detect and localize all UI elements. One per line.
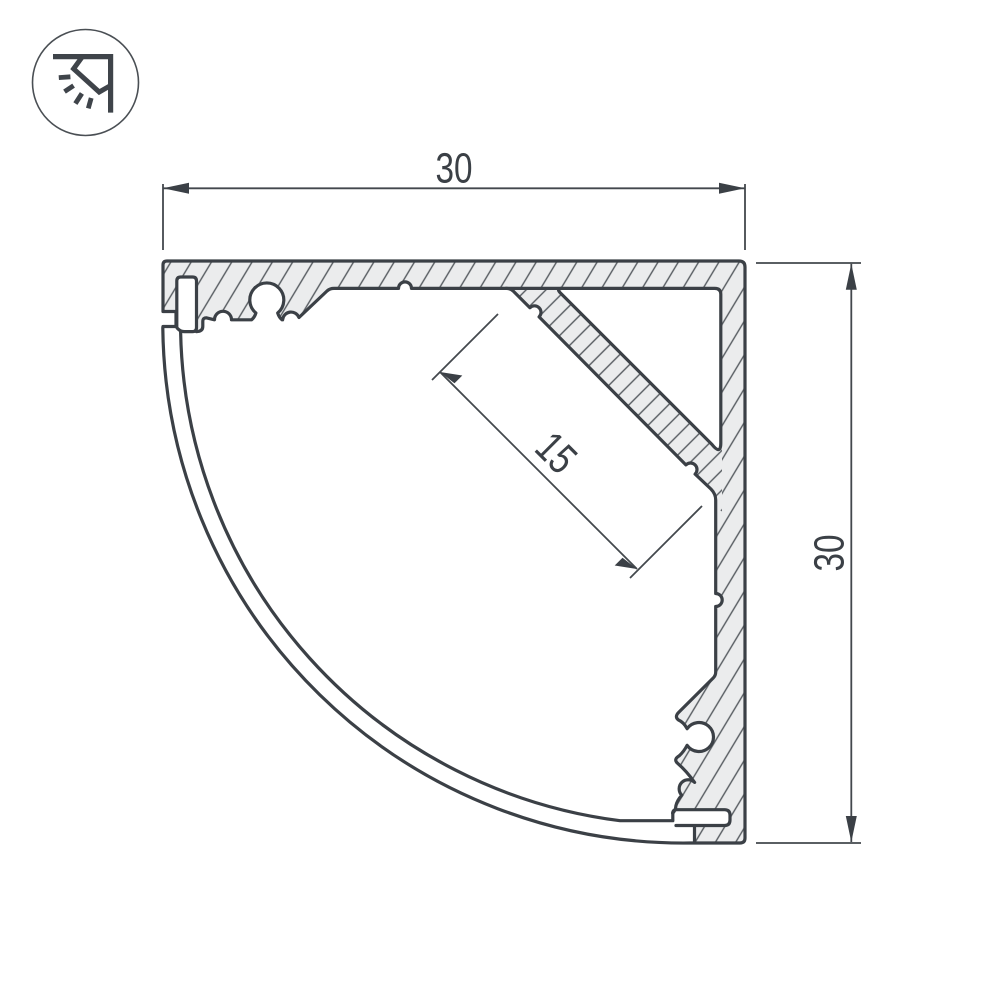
svg-text:30: 30 [436, 145, 473, 193]
svg-text:30: 30 [806, 535, 854, 572]
